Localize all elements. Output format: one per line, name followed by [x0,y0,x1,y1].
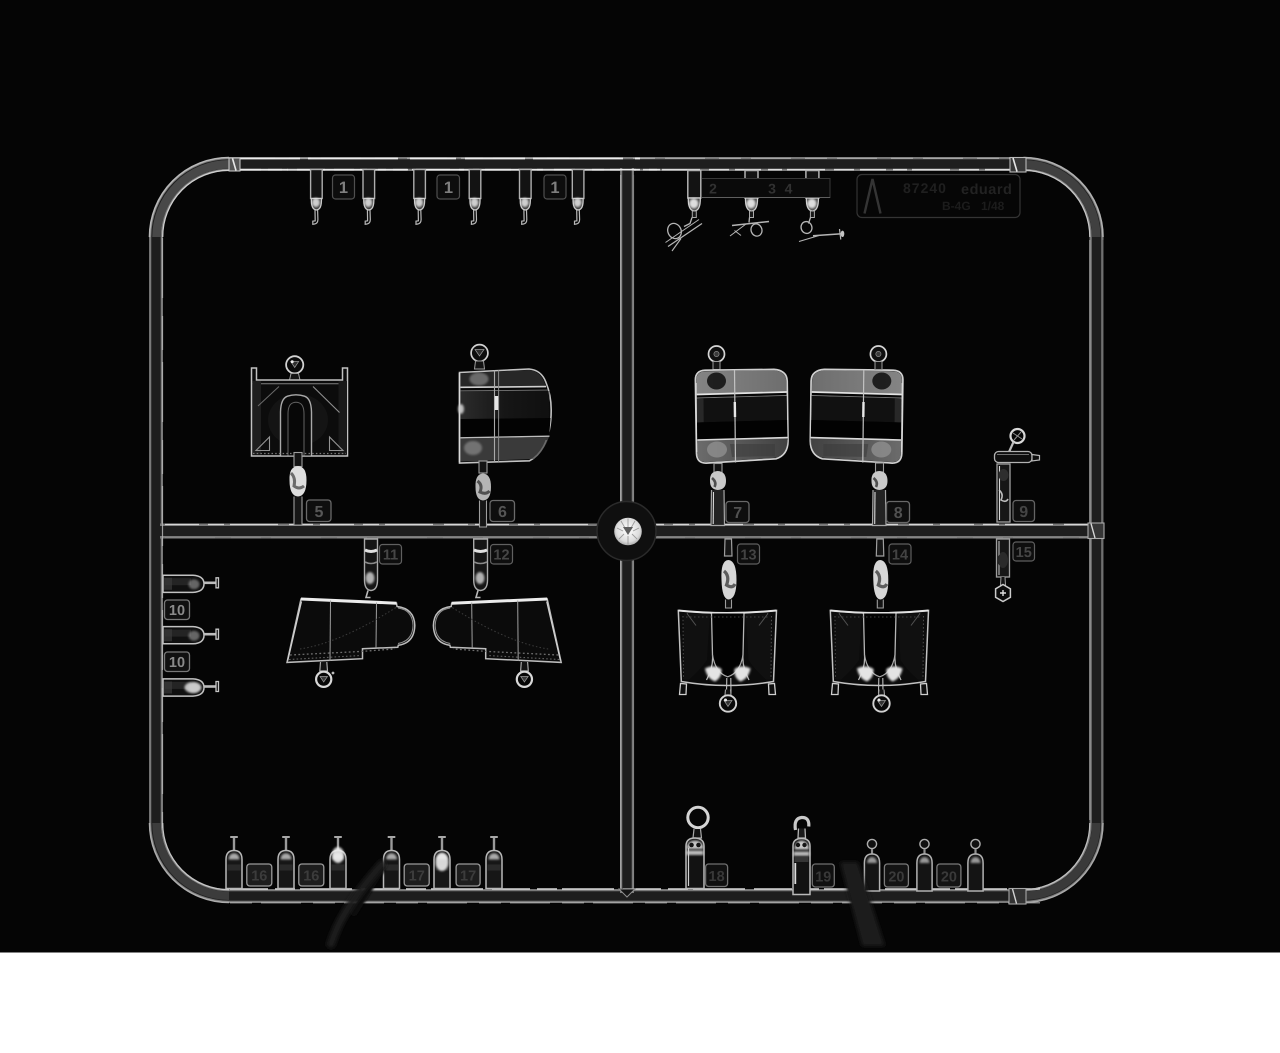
svg-text:14: 14 [892,548,908,564]
svg-text:87240: 87240 [903,180,947,196]
svg-text:17: 17 [409,869,425,885]
svg-text:15: 15 [1016,545,1032,561]
svg-text:1: 1 [444,179,453,197]
svg-text:8: 8 [894,505,903,522]
svg-text:16: 16 [251,869,267,885]
svg-text:18: 18 [709,869,725,885]
svg-text:5: 5 [315,504,324,521]
svg-text:1: 1 [550,179,559,197]
svg-text:4: 4 [785,181,793,197]
svg-text:B-4G: B-4G [942,199,971,213]
svg-text:20: 20 [941,870,957,886]
svg-text:6: 6 [498,504,507,521]
svg-text:19: 19 [815,870,831,886]
svg-text:2: 2 [709,181,717,197]
svg-text:20: 20 [888,870,904,886]
svg-text:eduard: eduard [961,182,1012,198]
svg-text:16: 16 [303,869,319,885]
svg-text:9: 9 [1019,504,1028,521]
svg-text:11: 11 [383,548,398,564]
svg-text:1: 1 [339,179,348,197]
svg-text:3: 3 [768,181,776,197]
svg-text:1/48: 1/48 [981,199,1005,213]
svg-text:10: 10 [169,655,185,671]
svg-text:13: 13 [740,548,756,564]
svg-text:17: 17 [460,869,476,885]
svg-text:10: 10 [169,603,185,619]
svg-text:7: 7 [733,505,742,522]
svg-text:12: 12 [493,548,509,564]
